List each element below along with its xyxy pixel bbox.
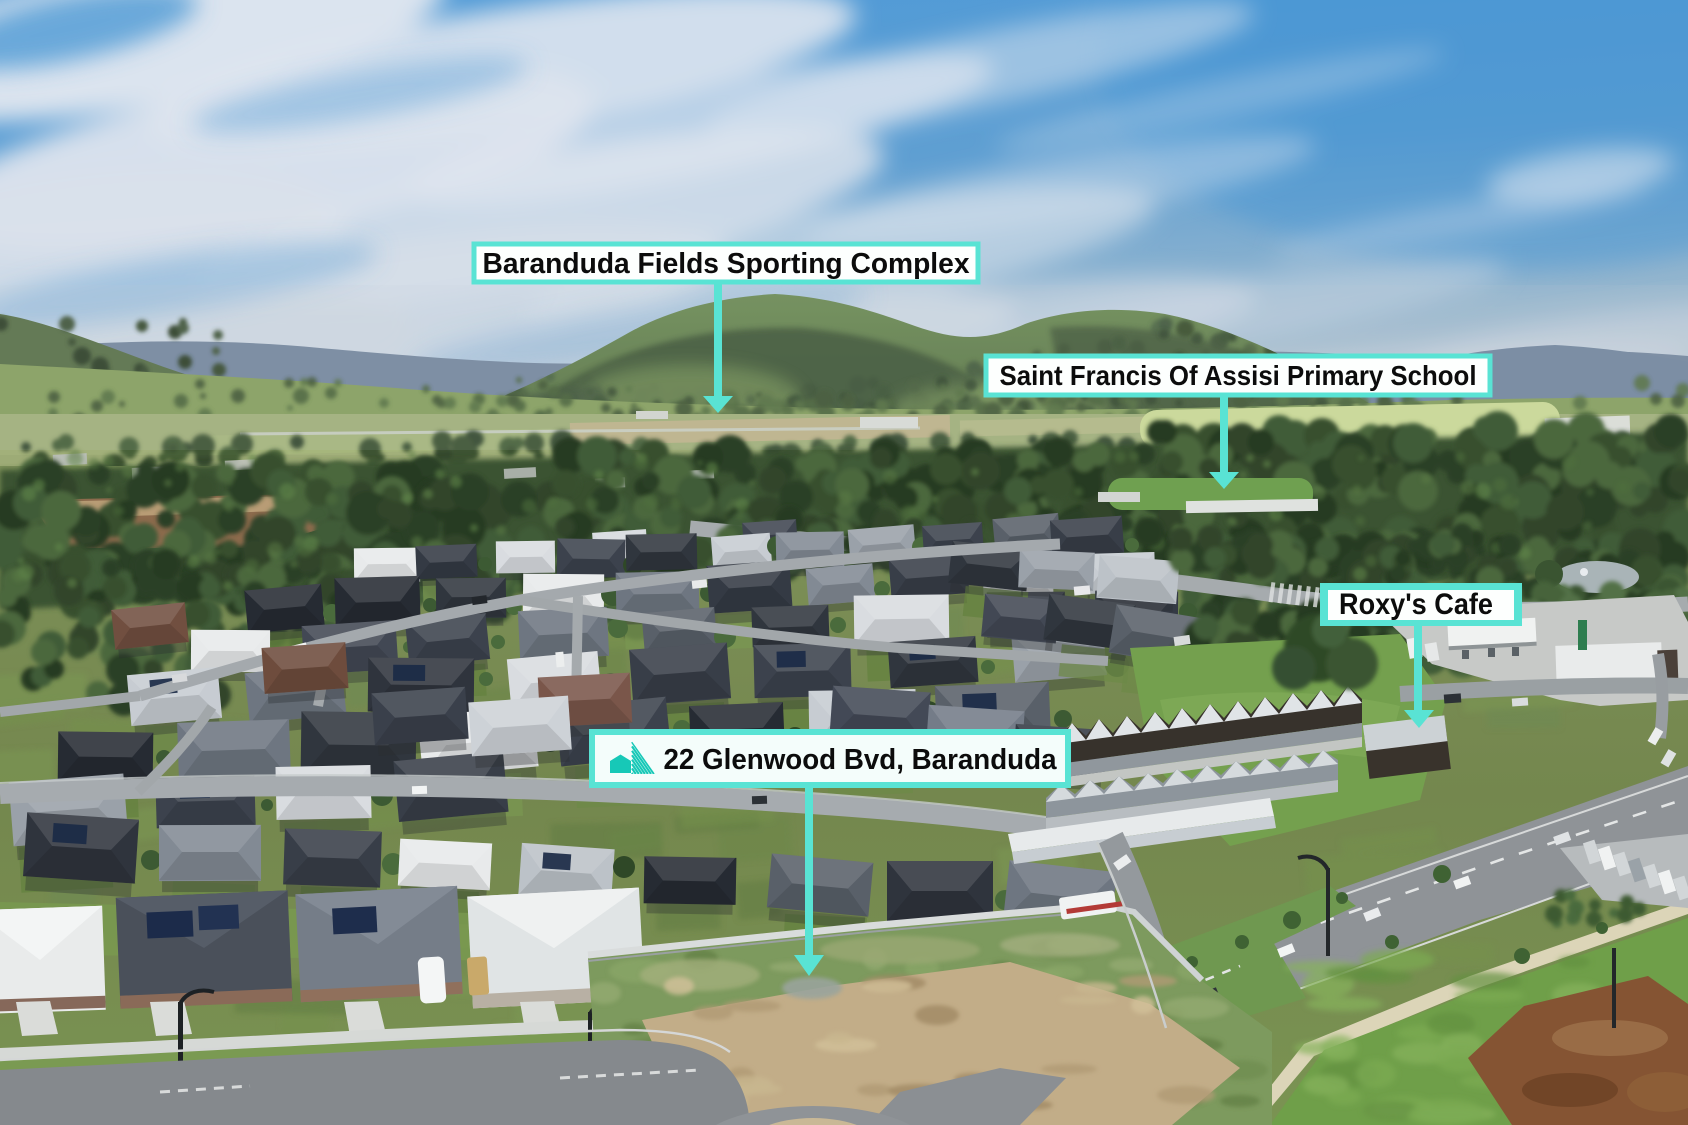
svg-text:Baranduda Fields Sporting Comp: Baranduda Fields Sporting Complex xyxy=(483,248,970,280)
svg-text:Saint Francis Of Assisi Primar: Saint Francis Of Assisi Primary School xyxy=(1000,360,1477,391)
svg-text:Roxy's Cafe: Roxy's Cafe xyxy=(1339,588,1493,621)
svg-text:22 Glenwood Bvd, Baranduda: 22 Glenwood Bvd, Baranduda xyxy=(664,744,1058,776)
